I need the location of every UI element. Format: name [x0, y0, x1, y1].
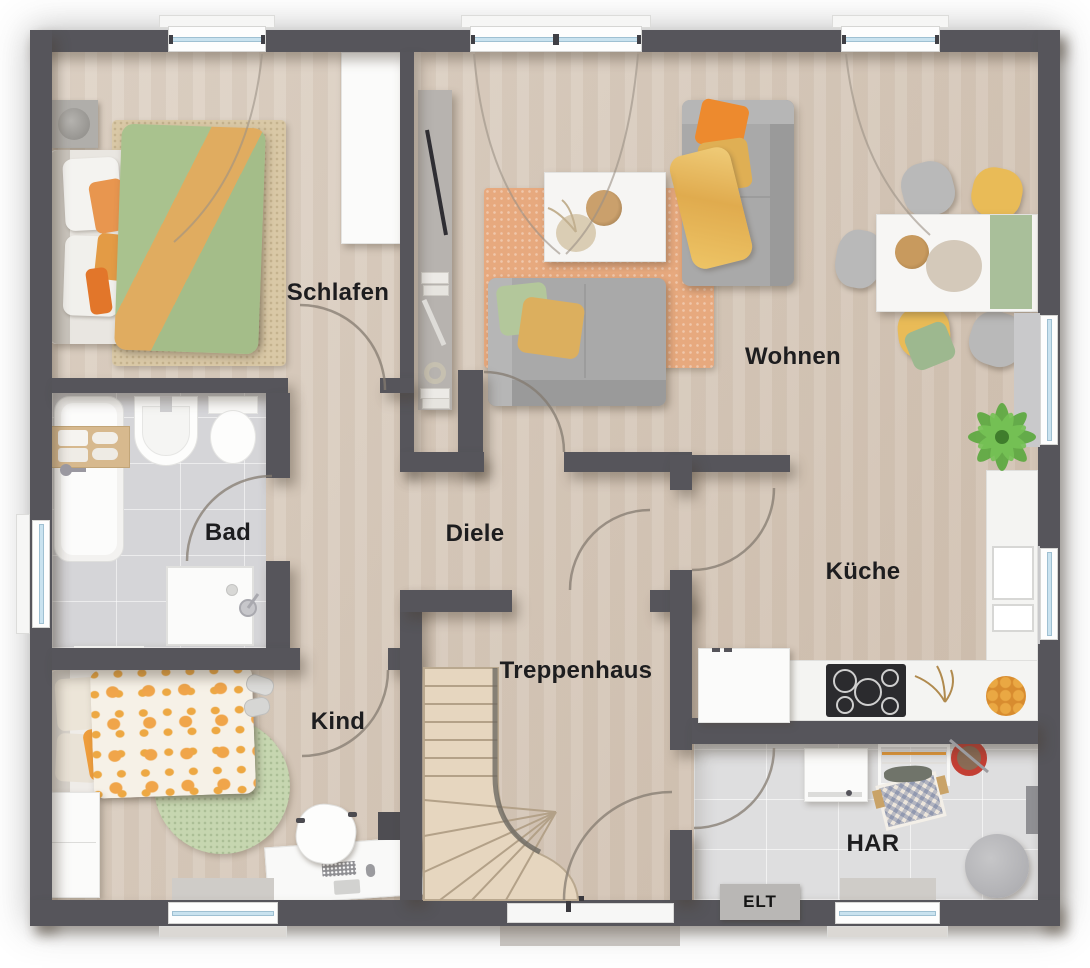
window-tick	[842, 35, 846, 44]
books-icon	[423, 285, 449, 296]
kids-wardrobe	[50, 792, 100, 898]
kitchen-sink-basin	[992, 604, 1034, 632]
washer-knob-icon	[846, 790, 852, 796]
fruit-bowl-icon	[986, 676, 1026, 716]
sofa-backrest	[488, 380, 666, 406]
wardrobe	[341, 52, 402, 244]
centerpiece-bowl-icon	[895, 235, 929, 269]
polka-dot-duvet	[90, 665, 256, 799]
chair-armrest	[296, 818, 305, 823]
window-glass	[39, 524, 44, 624]
wall-kids-top	[52, 648, 300, 670]
kitchen-sink-basin	[992, 546, 1034, 600]
floor-plan: ELT	[0, 0, 1090, 968]
window-niche	[1014, 313, 1040, 447]
room-label-wohnen: Wohnen	[745, 343, 841, 371]
wall-bath-right-upper	[266, 393, 290, 478]
room-label-kueche: Küche	[826, 558, 901, 586]
fridge-handle-icon	[724, 648, 732, 652]
window-sill	[16, 514, 30, 634]
books-icon	[422, 398, 450, 409]
fridge-handle-icon	[712, 648, 720, 652]
drying-rack-bar	[882, 752, 946, 755]
shower	[166, 566, 254, 646]
window-tick	[637, 35, 641, 44]
towel-icon	[58, 448, 88, 462]
window-tick	[471, 35, 475, 44]
wall-shelf	[378, 812, 402, 840]
wardrobe-seam	[52, 842, 96, 843]
window-niche	[172, 878, 274, 900]
towel-roll-icon	[92, 432, 118, 444]
wall-bedroom-bottom-jamb	[380, 378, 414, 393]
window-glass	[172, 911, 274, 916]
exterior-wall-left	[30, 30, 52, 926]
wall-kids-stairs	[400, 590, 422, 900]
window-glass	[1047, 319, 1052, 441]
towel-icon	[58, 430, 88, 446]
room-label-schlafen: Schlafen	[287, 279, 389, 307]
wall-kitchen-left	[670, 570, 692, 750]
elt-label: ELT	[743, 892, 777, 912]
wall-stairs-top	[400, 590, 512, 612]
wall-hall-top-left	[400, 452, 484, 472]
wall-entry-har	[670, 830, 692, 900]
entrance-step	[500, 926, 680, 946]
shower-drain-icon	[226, 584, 238, 596]
cooktop	[826, 664, 906, 717]
chair-armrest	[348, 812, 357, 817]
table-runner	[990, 215, 1032, 309]
sofa-cushion-seam	[584, 284, 586, 378]
elt-box: ELT	[720, 884, 800, 920]
wall-kitchen-left-stub	[670, 455, 692, 490]
washer-door-seam	[808, 792, 862, 797]
window-sill	[827, 926, 948, 938]
room-label-diele: Diele	[446, 520, 505, 548]
room-label-har: HAR	[847, 830, 900, 858]
dried-flowers-icon	[926, 240, 982, 292]
exterior-wall-right	[1038, 30, 1060, 926]
window-niche	[840, 878, 936, 900]
window-glass	[845, 37, 936, 42]
monitor-stand	[334, 879, 361, 895]
window-glass	[172, 37, 262, 42]
books-icon	[421, 272, 449, 284]
wall-unit	[1026, 786, 1038, 834]
wreath-decor-icon	[424, 362, 446, 384]
pampas-plant-icon	[556, 214, 596, 252]
window-sill	[159, 926, 287, 938]
sink-basin	[142, 406, 190, 456]
wall-bedroom-bottom	[52, 378, 288, 393]
wall-bedroom-right	[400, 52, 414, 472]
entrance-door	[507, 903, 674, 923]
bed-duvet	[114, 124, 266, 355]
window-tick	[935, 35, 939, 44]
window-glass	[1047, 552, 1052, 636]
door-handle-icon	[566, 896, 571, 912]
room-label-kind: Kind	[311, 708, 366, 736]
window-tick	[261, 35, 265, 44]
bucket-icon	[951, 740, 987, 776]
bedside-lamp-icon	[58, 108, 90, 140]
towel-roll-icon	[92, 448, 118, 460]
toilet	[210, 410, 256, 464]
drying-rack-bar	[882, 762, 946, 764]
wall-kitchen-top	[692, 455, 790, 472]
window-mullion	[553, 34, 559, 45]
sofa-backrest	[770, 100, 794, 286]
window-tick	[169, 35, 173, 44]
refrigerator	[698, 648, 790, 723]
wall-bath-right-lower	[266, 561, 290, 648]
room-label-bad: Bad	[205, 519, 251, 547]
room-label-treppenhaus: Treppenhaus	[500, 657, 653, 685]
water-heater-icon	[965, 834, 1029, 898]
accent-pillow	[516, 296, 585, 360]
window-glass	[839, 911, 936, 916]
faucet-icon	[160, 396, 172, 412]
mouse-icon	[365, 864, 375, 878]
